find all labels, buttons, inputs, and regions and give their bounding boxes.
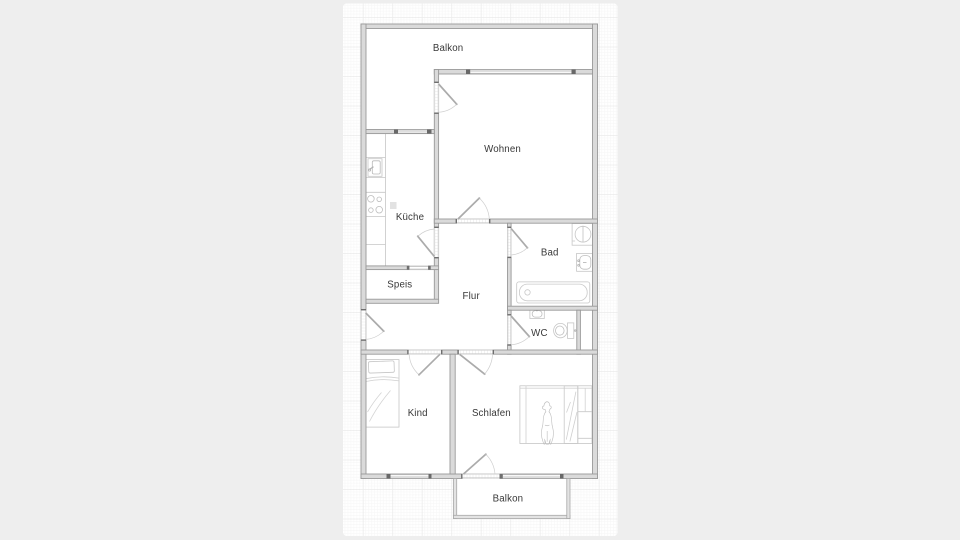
svg-text:Flur: Flur	[463, 291, 481, 302]
svg-text:Speis: Speis	[387, 279, 412, 290]
svg-text:WC: WC	[531, 328, 547, 339]
svg-text:Küche: Küche	[396, 212, 424, 223]
svg-text:Balkon: Balkon	[433, 43, 464, 54]
svg-text:Kind: Kind	[408, 408, 428, 419]
svg-text:Wohnen: Wohnen	[484, 144, 521, 155]
svg-text:Bad: Bad	[541, 248, 559, 259]
svg-text:Balkon: Balkon	[493, 494, 524, 505]
svg-text:Schlafen: Schlafen	[472, 408, 511, 419]
